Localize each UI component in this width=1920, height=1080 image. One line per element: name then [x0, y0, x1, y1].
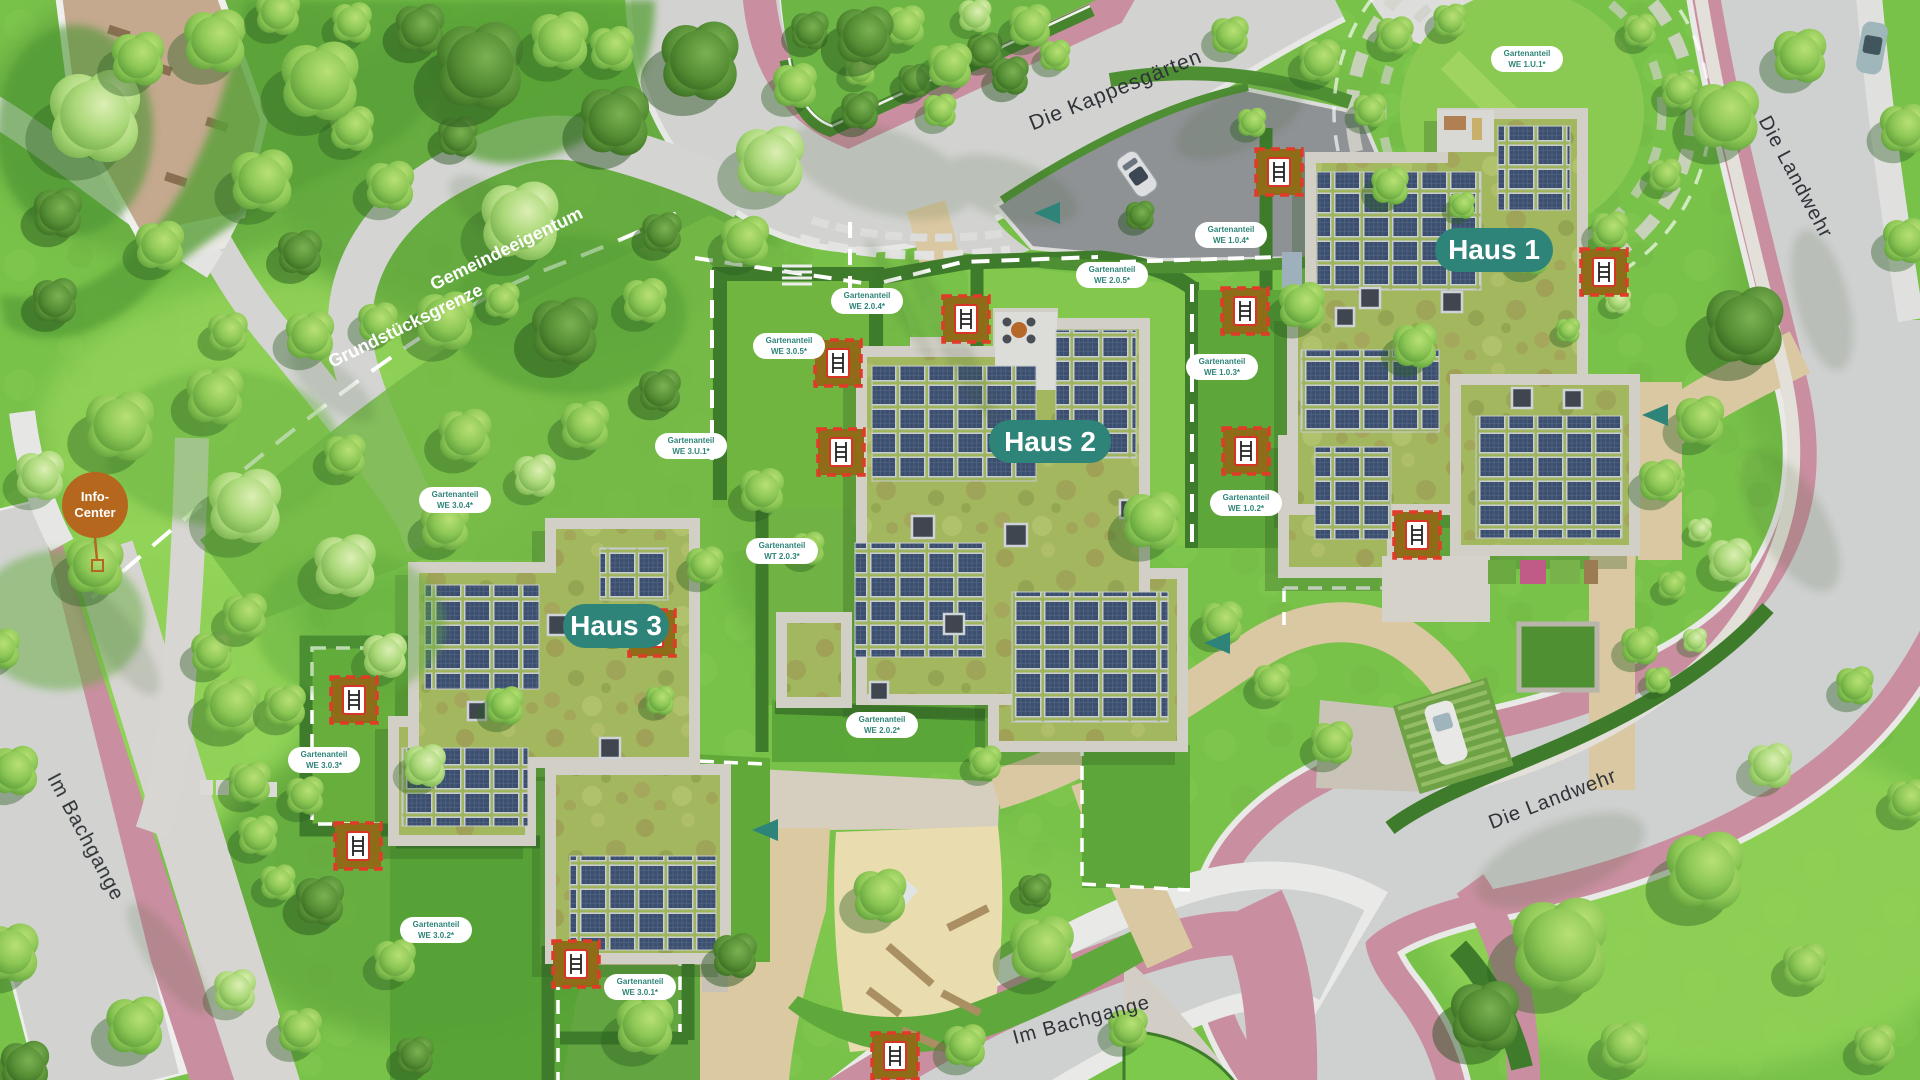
svg-text:Haus 3: Haus 3 [570, 610, 662, 641]
svg-text:WE 3.U.1*: WE 3.U.1* [672, 447, 710, 456]
svg-text:WE 3.0.5*: WE 3.0.5* [771, 347, 808, 356]
svg-text:Center: Center [74, 505, 115, 520]
svg-text:Gartenanteil: Gartenanteil [1208, 225, 1255, 234]
svg-text:WE 3.0.3*: WE 3.0.3* [306, 761, 343, 770]
svg-text:WE 2.0.5*: WE 2.0.5* [1094, 276, 1131, 285]
svg-text:Gartenanteil: Gartenanteil [617, 977, 664, 986]
svg-text:Gartenanteil: Gartenanteil [844, 291, 891, 300]
svg-text:WE 3.0.1*: WE 3.0.1* [622, 988, 659, 997]
svg-text:WE 1.0.3*: WE 1.0.3* [1204, 368, 1241, 377]
svg-text:Gartenanteil: Gartenanteil [413, 920, 460, 929]
svg-text:Gartenanteil: Gartenanteil [301, 750, 348, 759]
svg-text:Haus 1: Haus 1 [1448, 234, 1540, 265]
svg-text:Gartenanteil: Gartenanteil [1223, 493, 1270, 502]
svg-text:Haus 2: Haus 2 [1004, 426, 1096, 457]
svg-text:Gartenanteil: Gartenanteil [759, 541, 806, 550]
svg-text:Gartenanteil: Gartenanteil [1199, 357, 1246, 366]
svg-text:WE 2.0.2*: WE 2.0.2* [864, 726, 901, 735]
svg-text:WE 3.0.4*: WE 3.0.4* [437, 501, 474, 510]
svg-text:Gartenanteil: Gartenanteil [1089, 265, 1136, 274]
svg-text:WE 1.0.4*: WE 1.0.4* [1213, 236, 1250, 245]
svg-text:Gartenanteil: Gartenanteil [432, 490, 479, 499]
svg-text:WE 3.0.2*: WE 3.0.2* [418, 931, 455, 940]
svg-text:Info-: Info- [81, 489, 109, 504]
svg-text:Gartenanteil: Gartenanteil [668, 436, 715, 445]
svg-text:Gartenanteil: Gartenanteil [766, 336, 813, 345]
svg-text:Gartenanteil: Gartenanteil [859, 715, 906, 724]
svg-text:Gartenanteil: Gartenanteil [1504, 49, 1551, 58]
svg-text:WE 2.0.4*: WE 2.0.4* [849, 302, 886, 311]
svg-text:WE 1.0.2*: WE 1.0.2* [1228, 504, 1265, 513]
svg-text:WT 2.0.3*: WT 2.0.3* [764, 552, 800, 561]
svg-text:WE 1.U.1*: WE 1.U.1* [1508, 60, 1546, 69]
